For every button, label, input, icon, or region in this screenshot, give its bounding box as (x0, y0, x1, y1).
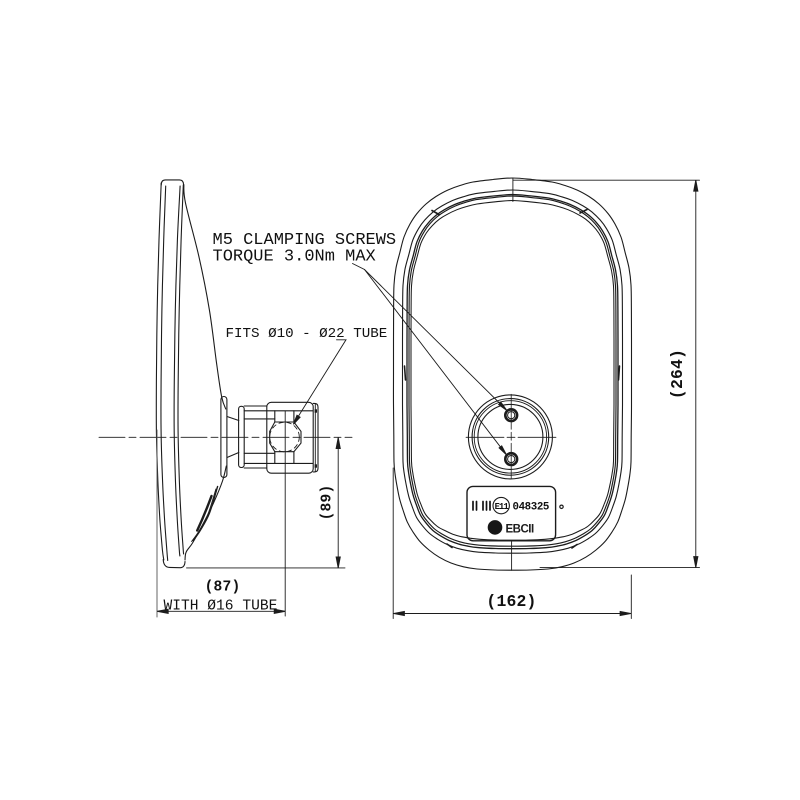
svg-text:EBCII: EBCII (506, 524, 534, 536)
svg-text:WITH Ø16 TUBE: WITH Ø16 TUBE (164, 599, 278, 615)
svg-text:(264): (264) (668, 349, 687, 399)
svg-text:(89): (89) (320, 485, 336, 521)
svg-text:FITS Ø10 - Ø22 TUBE: FITS Ø10 - Ø22 TUBE (226, 326, 388, 342)
svg-text:TORQUE 3.0Nm MAX: TORQUE 3.0Nm MAX (213, 248, 376, 267)
svg-text:E11: E11 (495, 502, 509, 512)
svg-text:(87): (87) (205, 580, 241, 596)
svg-text:048325: 048325 (513, 502, 549, 514)
svg-text:(162): (162) (486, 592, 536, 611)
